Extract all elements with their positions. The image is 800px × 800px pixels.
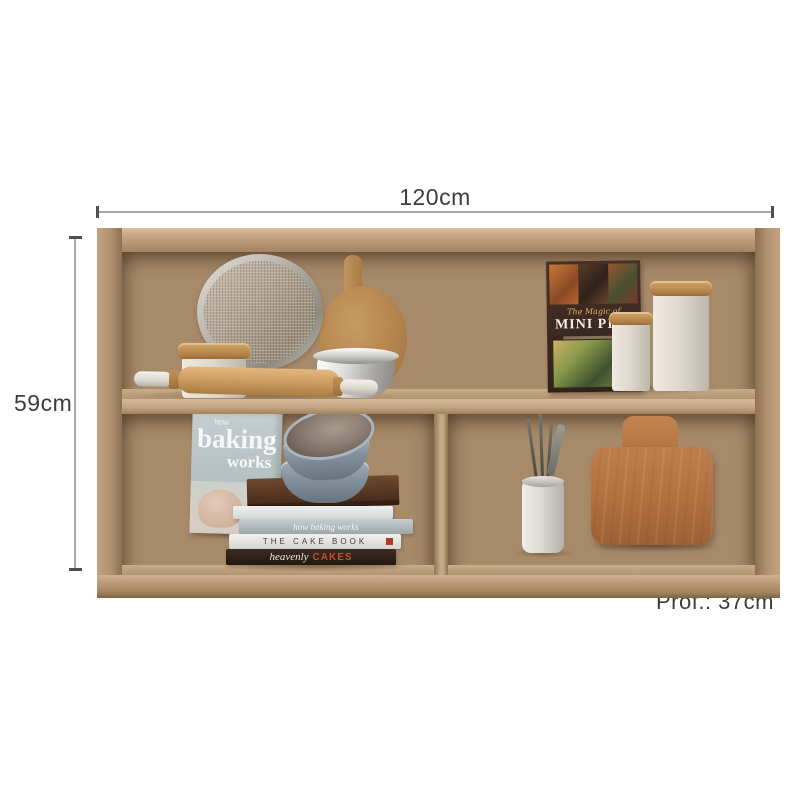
spine-text: THE CAKE BOOK bbox=[263, 537, 367, 546]
utensil-holder-cup bbox=[522, 481, 564, 553]
jar-wood-lid bbox=[609, 312, 653, 325]
dimension-tick bbox=[96, 206, 99, 218]
rolling-pin-barrel bbox=[178, 366, 341, 397]
width-dimension-label: 120cm bbox=[97, 184, 773, 211]
book-spine-blank bbox=[233, 506, 393, 519]
dimension-tick bbox=[69, 236, 82, 239]
rolling-pin bbox=[134, 363, 377, 403]
cookbook-title-line1: baking bbox=[192, 426, 283, 454]
cabinet-top-board bbox=[97, 228, 780, 252]
cabinet-left-board bbox=[97, 228, 122, 586]
dimension-tick bbox=[69, 568, 82, 571]
utensil-holder-rim bbox=[522, 476, 564, 487]
height-dimension-line bbox=[74, 237, 76, 570]
cabinet-vertical-divider bbox=[434, 414, 448, 575]
steel-pan-rim bbox=[313, 348, 399, 364]
product-diagram-scene: 120cm 59cm Prof.: 37cm bbox=[0, 0, 800, 800]
jar-wood-lid bbox=[650, 281, 712, 296]
rolling-pin-handle bbox=[134, 371, 172, 387]
cover-photo bbox=[578, 264, 608, 304]
spine-text: heavenly bbox=[269, 551, 308, 563]
canister-wood-lid bbox=[178, 343, 250, 359]
cabinet-middle-shelf-edge bbox=[122, 399, 755, 414]
spine-red-mark bbox=[386, 538, 393, 545]
cookbook-title-line2: works bbox=[191, 451, 281, 470]
book-spine-heavenly-cakes: heavenly CAKES bbox=[226, 549, 396, 565]
dimension-tick bbox=[771, 206, 774, 218]
book-spine-how-baking-works: how baking works bbox=[239, 519, 413, 534]
cover-photo bbox=[549, 264, 579, 304]
cabinet-right-board bbox=[755, 228, 780, 586]
cookbook-cover-photos bbox=[549, 263, 638, 304]
cabinet-bottom-board bbox=[97, 575, 780, 598]
book-spine-the-cake-book: THE CAKE BOOK bbox=[229, 534, 401, 549]
rolling-pin-handle bbox=[340, 379, 378, 395]
cover-photo bbox=[608, 263, 638, 303]
shelf-floor bbox=[448, 565, 755, 575]
cutting-board bbox=[591, 447, 713, 545]
ceramic-jar-small bbox=[612, 321, 650, 391]
spine-text: CAKES bbox=[313, 552, 353, 563]
width-dimension-line bbox=[97, 211, 773, 213]
height-dimension-label: 59cm bbox=[14, 390, 72, 417]
ceramic-jar-large bbox=[653, 291, 709, 391]
cutting-board-grain bbox=[591, 447, 713, 545]
